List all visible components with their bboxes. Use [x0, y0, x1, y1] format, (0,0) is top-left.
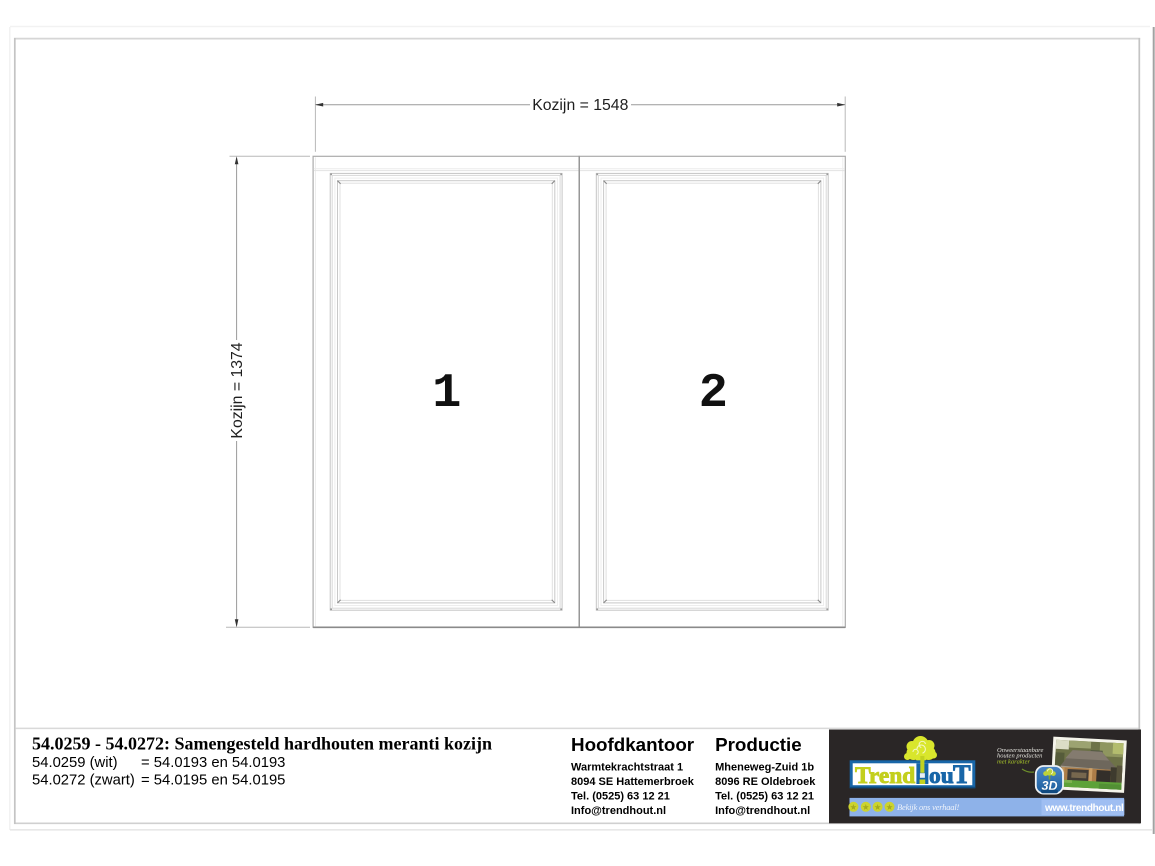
svg-text:Productie: Productie — [715, 734, 802, 755]
svg-text:met karakter: met karakter — [997, 759, 1031, 766]
svg-text:Bekijk ons verhaal!: Bekijk ons verhaal! — [897, 802, 960, 812]
svg-text:Tel. (0525) 63 12 21: Tel. (0525) 63 12 21 — [571, 791, 670, 803]
svg-text:54.0259 (wit): 54.0259 (wit) — [32, 755, 118, 771]
svg-text:ou: ou — [929, 763, 954, 789]
svg-text:Kozijn = 1548: Kozijn = 1548 — [532, 97, 628, 114]
svg-text:Trend: Trend — [855, 763, 915, 789]
svg-text:★: ★ — [886, 803, 893, 811]
svg-text:Warmtekrachtstraat 1: Warmtekrachtstraat 1 — [571, 761, 683, 773]
svg-text:★: ★ — [850, 803, 857, 811]
svg-text:54.0259 - 54.0272: Samengestel: 54.0259 - 54.0272: Samengesteld hardhout… — [32, 733, 492, 753]
svg-text:T: T — [953, 759, 971, 789]
svg-text:8094 SE Hattemerbroek: 8094 SE Hattemerbroek — [571, 776, 695, 788]
svg-text:★: ★ — [863, 803, 870, 811]
svg-text:1: 1 — [432, 366, 461, 421]
svg-text:Mheneweg-Zuid 1b: Mheneweg-Zuid 1b — [715, 761, 814, 773]
svg-text:Info@trendhout.nl: Info@trendhout.nl — [571, 805, 666, 817]
svg-text:= 54.0195 en 54.0195: = 54.0195 en 54.0195 — [141, 772, 285, 788]
svg-text:★: ★ — [874, 803, 881, 811]
svg-text:Hoofdkantoor: Hoofdkantoor — [571, 734, 695, 755]
svg-text:Tel. (0525) 63 12 21: Tel. (0525) 63 12 21 — [715, 791, 814, 803]
svg-text:2: 2 — [699, 366, 728, 421]
svg-text:Info@trendhout.nl: Info@trendhout.nl — [715, 805, 810, 817]
svg-text:= 54.0193 en 54.0193: = 54.0193 en 54.0193 — [141, 755, 285, 771]
svg-text:8096 RE Oldebroek: 8096 RE Oldebroek — [715, 776, 816, 788]
svg-text:Kozijn = 1374: Kozijn = 1374 — [229, 342, 246, 438]
svg-text:www.trendhout.nl: www.trendhout.nl — [1044, 803, 1124, 814]
svg-text:54.0272 (zwart): 54.0272 (zwart) — [32, 772, 135, 788]
